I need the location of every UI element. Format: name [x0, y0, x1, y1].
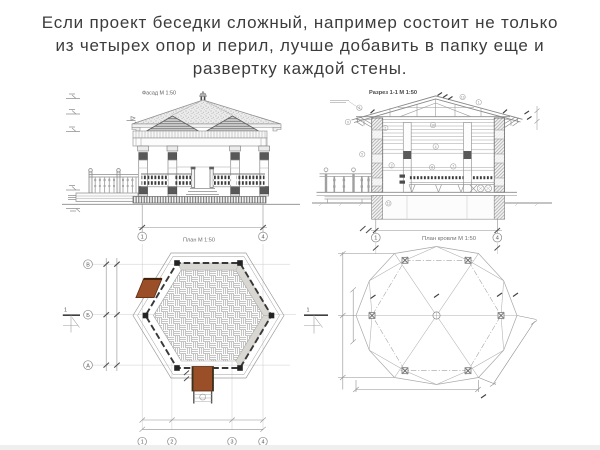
- svg-text:План М 1:50: План М 1:50: [183, 238, 215, 244]
- svg-text:Фасад М 1:50: Фасад М 1:50: [142, 91, 176, 97]
- svg-text:11: 11: [387, 202, 391, 206]
- svg-text:6: 6: [359, 106, 361, 110]
- svg-text:9: 9: [347, 120, 349, 124]
- svg-text:1: 1: [307, 308, 310, 314]
- svg-text:4: 4: [261, 235, 264, 241]
- svg-text:План кровли М 1:50: План кровли М 1:50: [422, 236, 476, 242]
- svg-text:4: 4: [435, 145, 437, 149]
- svg-text:1: 1: [141, 235, 144, 241]
- svg-text:2: 2: [384, 126, 386, 130]
- svg-text:1: 1: [374, 236, 377, 242]
- svg-text:Разрез 1-1 М 1:50: Разрез 1-1 М 1:50: [369, 90, 417, 96]
- svg-text:1: 1: [478, 101, 480, 105]
- svg-text:7: 7: [452, 165, 454, 169]
- svg-text:Б: Б: [86, 313, 90, 319]
- svg-text:1: 1: [64, 308, 67, 314]
- svg-text:4: 4: [496, 236, 499, 242]
- svg-text:8: 8: [431, 166, 433, 170]
- svg-text:3: 3: [391, 164, 393, 168]
- svg-text:5: 5: [361, 153, 363, 157]
- svg-text:10: 10: [431, 123, 435, 127]
- svg-text:В: В: [86, 262, 90, 268]
- svg-text:А: А: [86, 363, 90, 369]
- svg-text:13: 13: [461, 95, 465, 99]
